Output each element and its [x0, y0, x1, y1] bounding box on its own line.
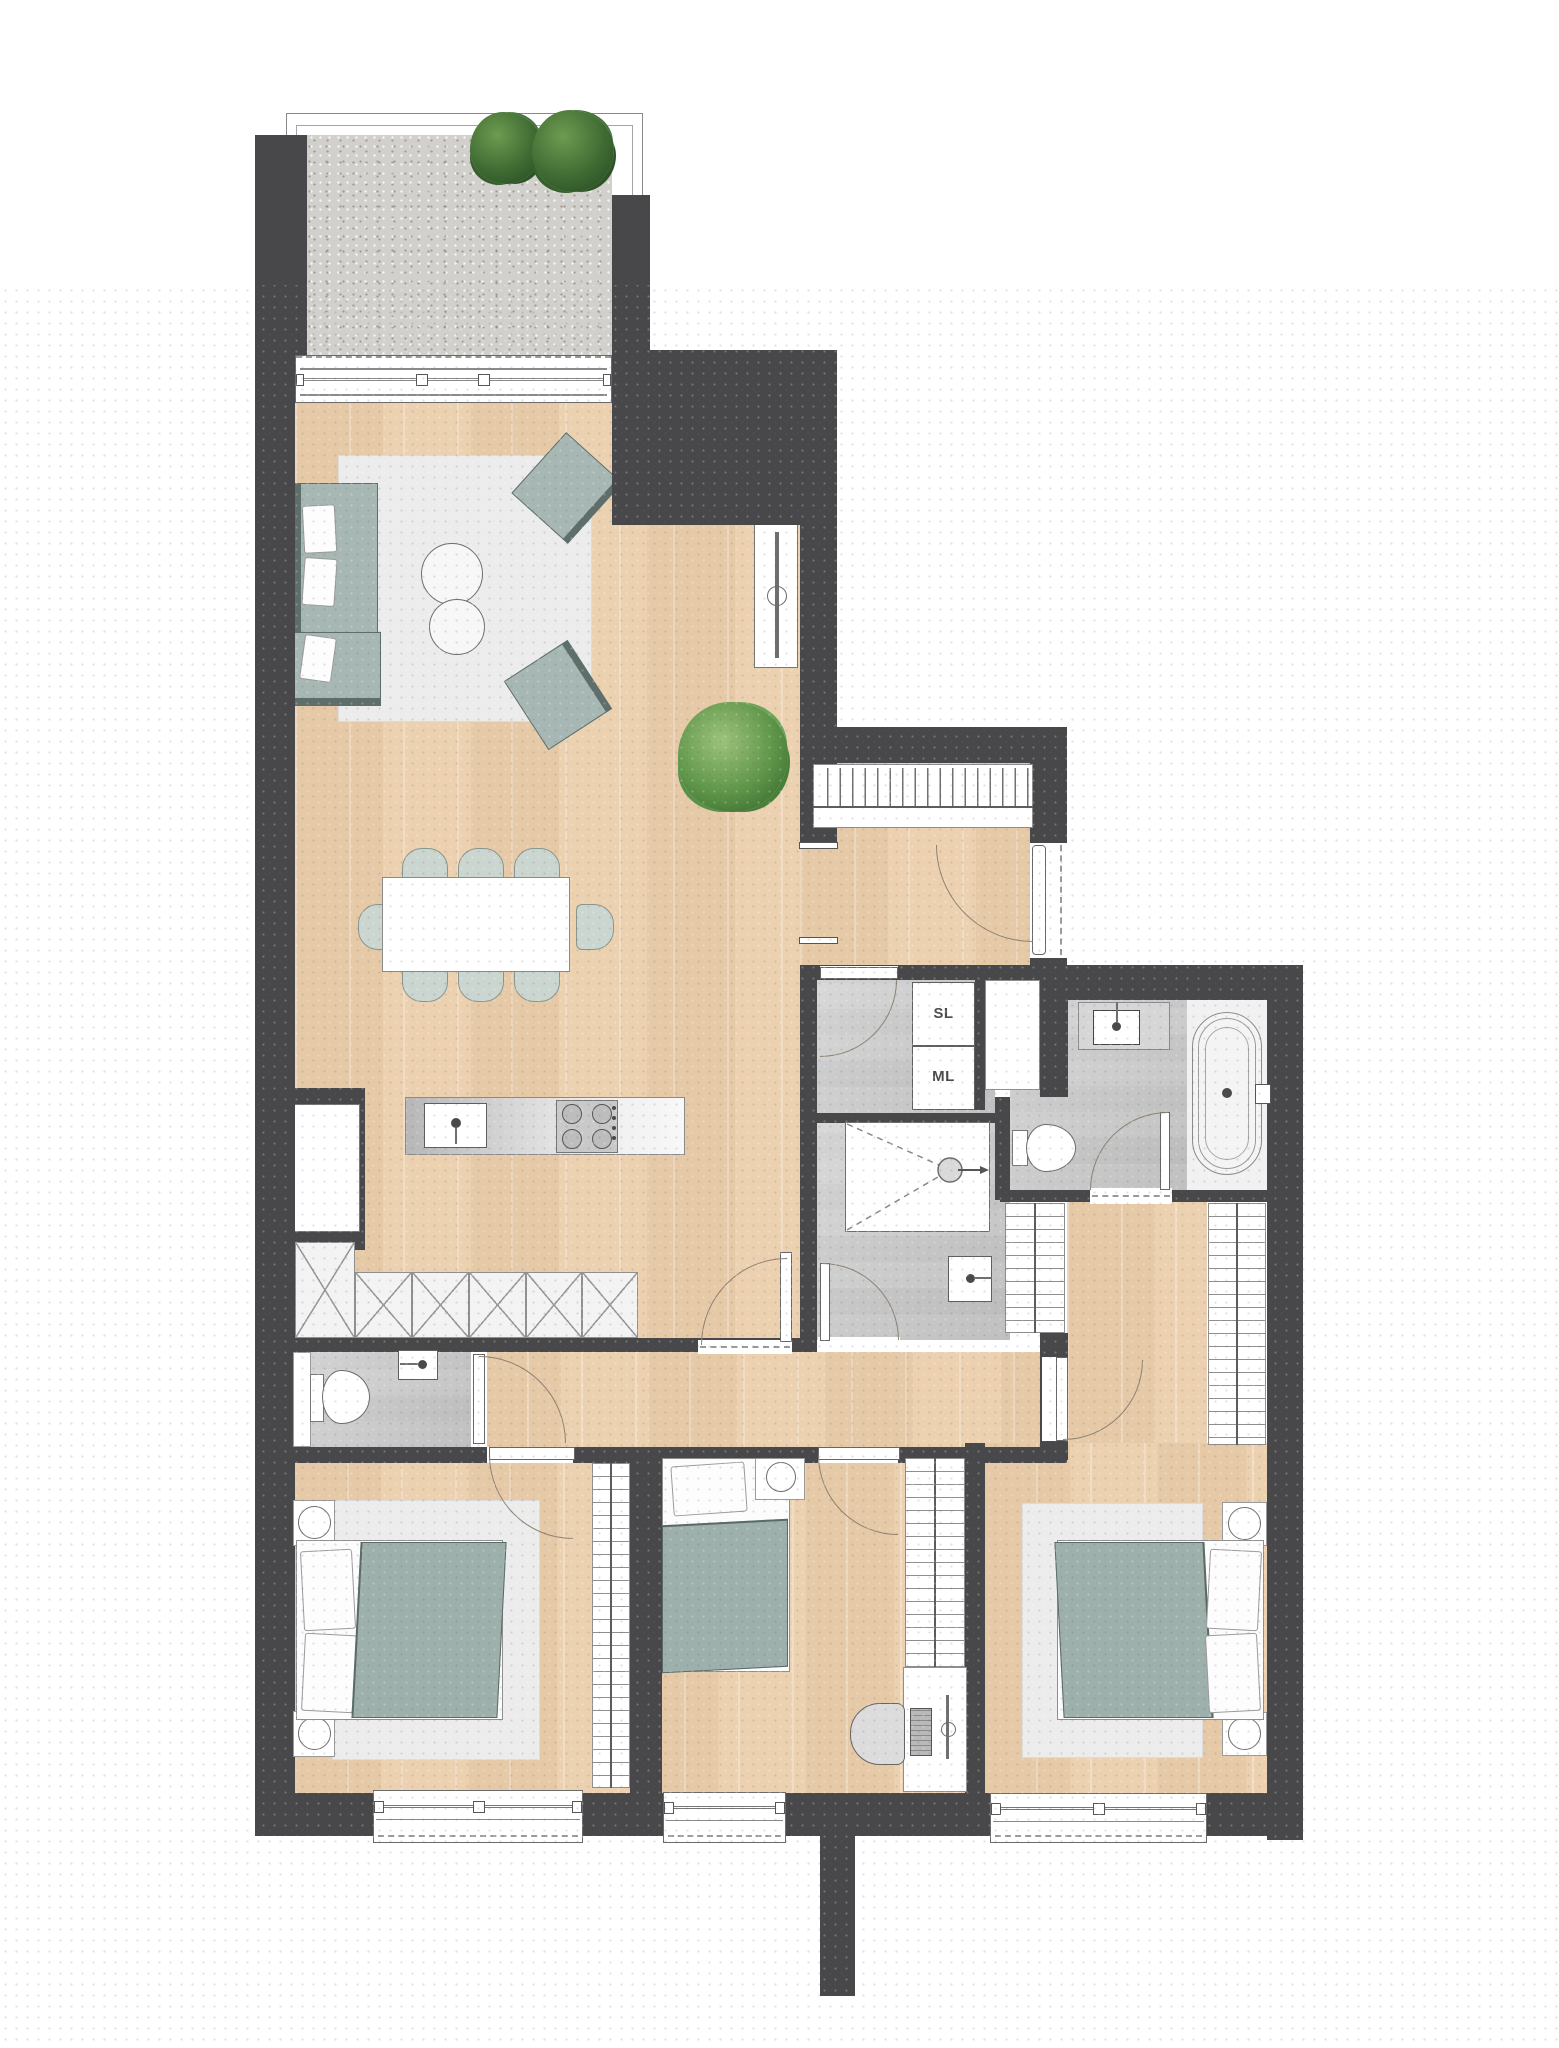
closet-rail: [1236, 1203, 1238, 1445]
entry-door-leaf: [1032, 845, 1046, 955]
bed-pillow: [301, 1633, 357, 1714]
hall-closet-hangers: [816, 768, 1030, 806]
bathtub-faucet-icon: [1255, 1084, 1271, 1104]
washer-sl-label: SL: [912, 1005, 975, 1022]
wall-niche-right: [975, 980, 985, 1110]
burner-icon: [562, 1129, 582, 1149]
shower-symbol-icon: [846, 1123, 989, 1231]
wall-stub-bottom: [820, 1836, 855, 1996]
wc-basin-tap-icon: [418, 1360, 427, 1369]
wall-bath-south-a: [1000, 1190, 1090, 1202]
kitchen-faucet-stem: [455, 1128, 457, 1144]
utility-door-leaf: [820, 967, 898, 979]
sofa-pillow: [301, 557, 337, 607]
storage-cabinet: [526, 1272, 582, 1338]
tall-cabinet: [292, 1104, 360, 1232]
cooktop-knob: [612, 1106, 616, 1110]
wall-left: [255, 135, 295, 1836]
wall-terrace-left: [293, 135, 307, 357]
tv-stand: [767, 586, 787, 606]
plant-icon: [678, 702, 788, 812]
wall-living-sanitary: [800, 965, 817, 1352]
hall-closet-rail: [813, 806, 1033, 808]
bed-pillow: [670, 1461, 747, 1516]
bedroom-left-window: [373, 1790, 583, 1843]
bath-door-dash: [1092, 1195, 1170, 1197]
wall-niche-east: [1040, 965, 1068, 1097]
burner-icon: [592, 1129, 612, 1149]
wardrobe-rail: [610, 1463, 612, 1788]
coffee-table: [429, 599, 485, 655]
washer-ml-label: ML: [912, 1068, 975, 1085]
bed-pillow: [1205, 1633, 1261, 1714]
burner-icon: [592, 1104, 612, 1124]
bed-duvet: [1054, 1542, 1213, 1718]
bedroom-master-window: [990, 1793, 1207, 1843]
living-hall-door-dash: [700, 1346, 790, 1348]
wall-bed1-east: [630, 1447, 662, 1793]
terrace-door-window: [295, 355, 612, 403]
wall-shower-bath: [995, 1097, 1010, 1200]
wall-ne-block: [612, 350, 837, 525]
wall-bath-south-b: [1172, 1190, 1267, 1202]
coffee-table: [421, 543, 483, 605]
bed-duvet: [662, 1519, 788, 1674]
sofa-pillow: [299, 634, 337, 683]
opening-jamb: [799, 842, 838, 849]
cooktop-knob: [612, 1136, 616, 1140]
nightstand-table: [1228, 1717, 1261, 1750]
bed-pillow: [300, 1549, 356, 1632]
cooktop-knob: [612, 1116, 616, 1120]
kitchen-faucet-icon: [451, 1118, 461, 1128]
dining-table: [382, 877, 570, 972]
storage-cabinet: [355, 1272, 412, 1338]
shower-basin-tap-stem: [974, 1277, 992, 1279]
storage-cabinet: [469, 1272, 526, 1338]
wall-bed2-east: [965, 1443, 985, 1793]
wall-hall-north: [800, 727, 1067, 763]
wall-east: [1267, 965, 1303, 1840]
storage-cabinet: [582, 1272, 638, 1338]
wall-bath-north: [1040, 965, 1285, 1000]
bedside-table: [766, 1462, 796, 1492]
wall-hallway-south-a: [255, 1447, 487, 1463]
storage-cabinet: [412, 1272, 469, 1338]
utility-niche: [985, 980, 1040, 1090]
storage-cabinet: [295, 1242, 355, 1338]
wall-terrace-right-column: [612, 195, 650, 357]
nightstand-table: [298, 1506, 331, 1539]
dining-chair: [576, 904, 614, 950]
burner-icon: [562, 1104, 582, 1124]
nightstand-table: [1228, 1507, 1261, 1540]
floor-plan: SL ML: [0, 0, 1559, 2048]
wc-basin-tap-stem: [400, 1363, 418, 1365]
terrace-bush-icon: [532, 110, 614, 192]
wardrobe-rail: [934, 1458, 936, 1667]
entry-door-dash: [1060, 845, 1062, 955]
bed-duvet: [351, 1542, 506, 1718]
desk-chair: [850, 1703, 905, 1765]
sofa-pillow: [302, 504, 337, 554]
wall-hall-east: [1030, 727, 1067, 845]
wc-shaft: [293, 1352, 311, 1447]
laptop-icon: [910, 1708, 932, 1756]
opening-jamb: [799, 937, 838, 944]
desk-lamp: [941, 1722, 956, 1737]
closet-rail: [1034, 1203, 1036, 1333]
bed-pillow: [1206, 1549, 1262, 1632]
shower-tray: [845, 1122, 990, 1232]
bathtub-drain-icon: [1222, 1088, 1232, 1098]
bedroom-middle-window: [663, 1792, 786, 1843]
nightstand-table: [298, 1717, 331, 1750]
vanity-tap-stem: [1116, 1002, 1118, 1022]
vanity-tap-icon: [1112, 1022, 1121, 1031]
cooktop-knob: [612, 1126, 616, 1130]
